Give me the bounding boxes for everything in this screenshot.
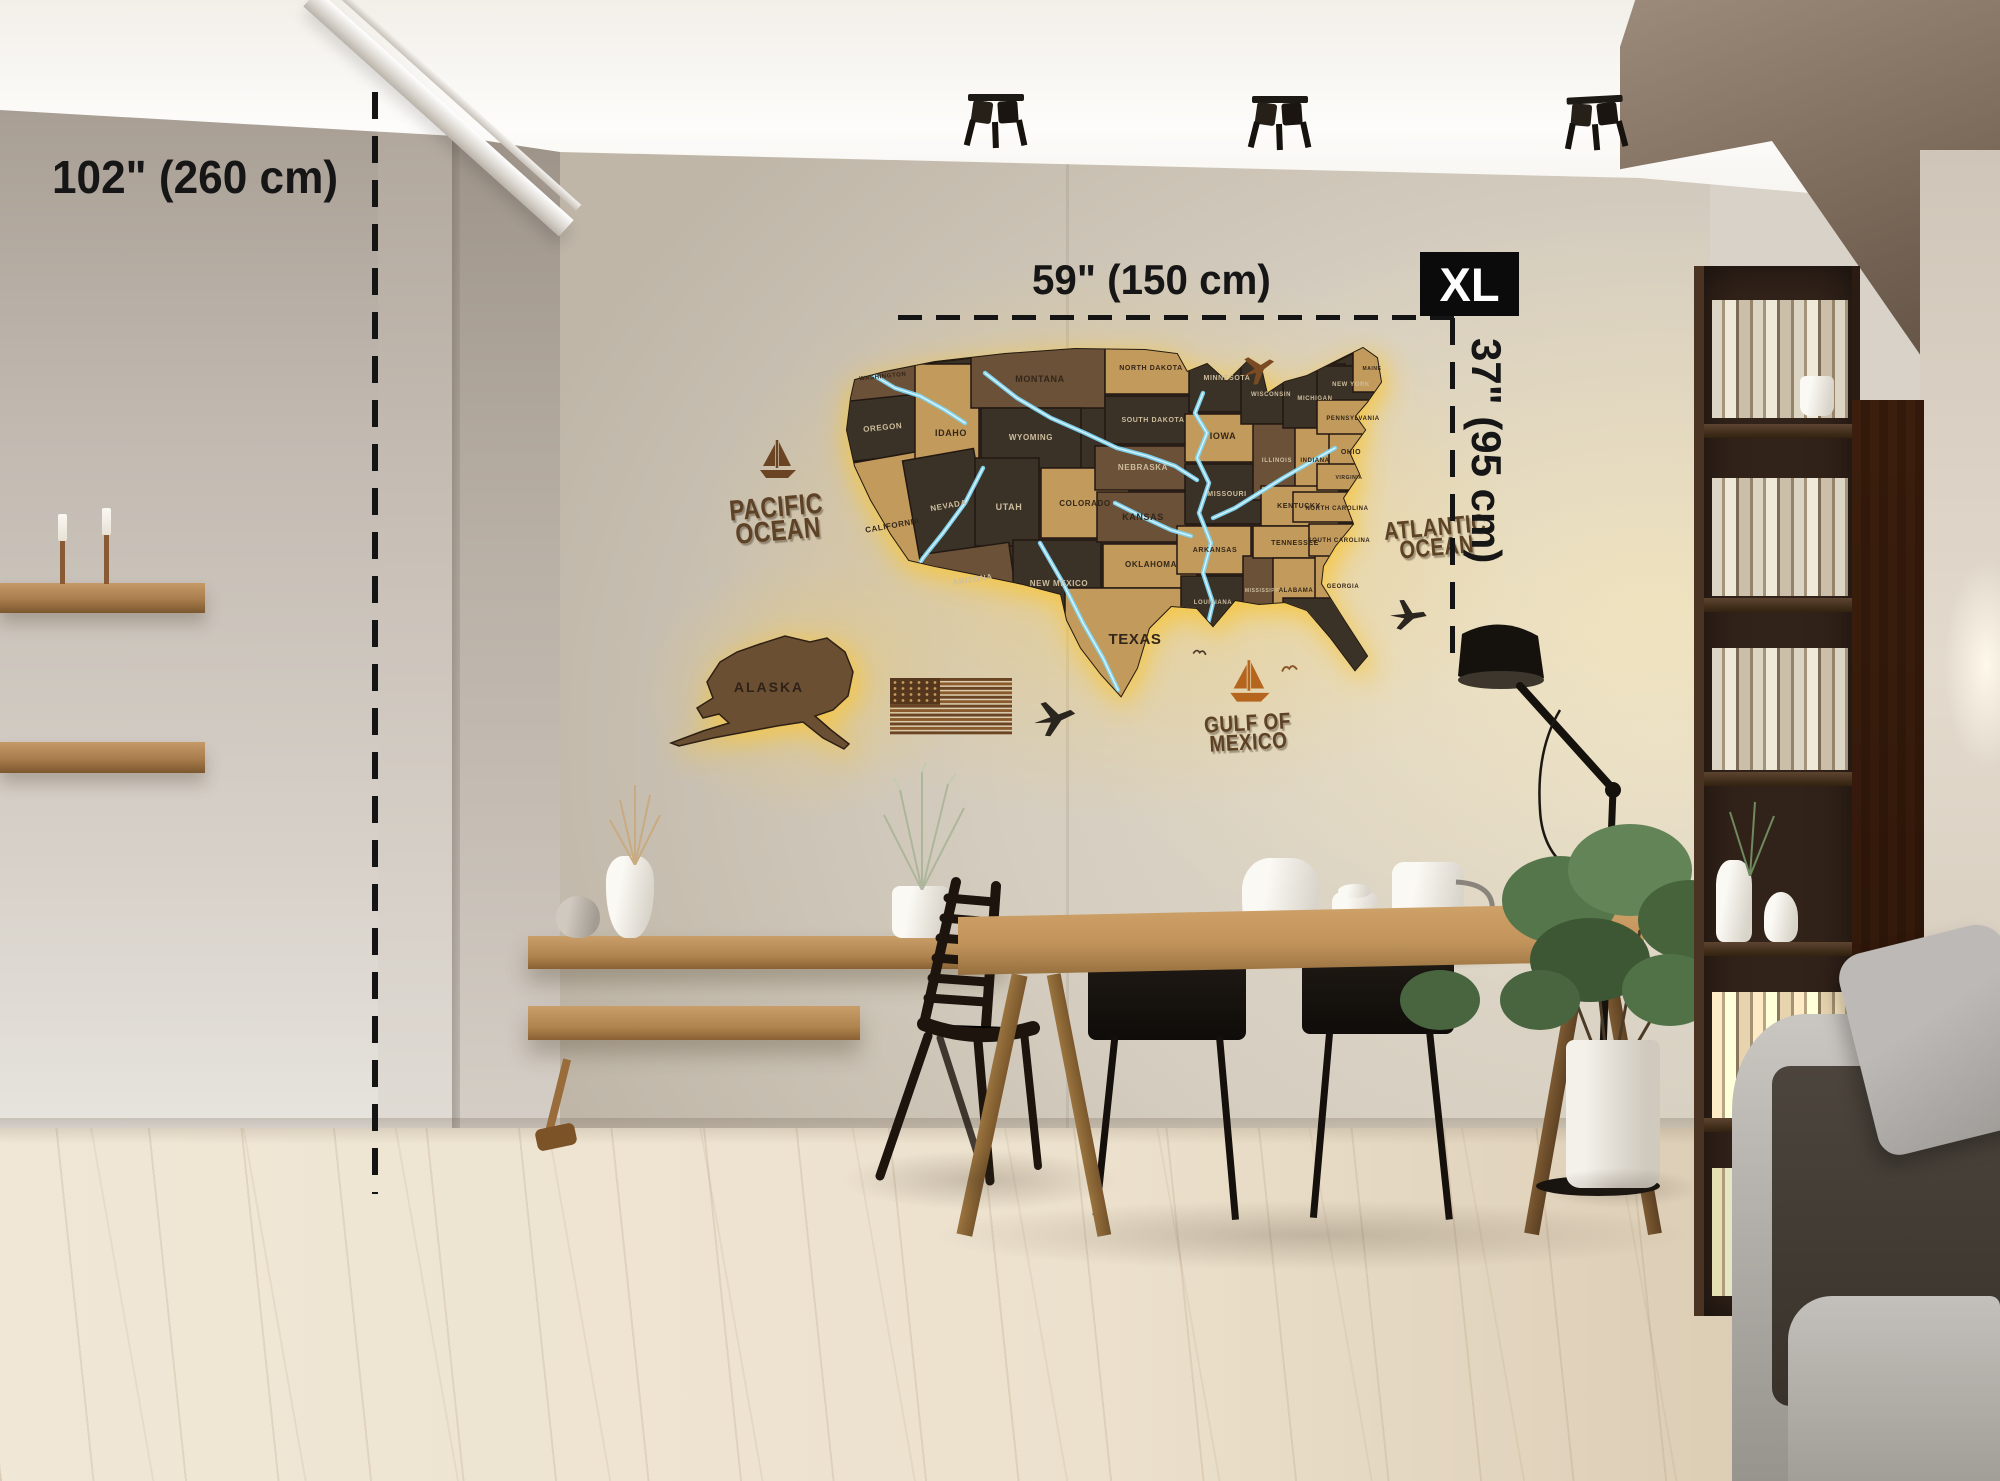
dried-branches xyxy=(590,770,680,865)
state-label: MONTANA xyxy=(1015,374,1065,384)
state-label: WYOMING xyxy=(1009,433,1053,442)
gulf-of-mexico-sign: GULF OF MEXICO xyxy=(1187,712,1309,756)
state-label: NEW YORK xyxy=(1332,382,1370,388)
alaska-label: ALASKA xyxy=(734,679,804,695)
us-flag-wall-art xyxy=(890,678,1012,736)
state-label: WISCONSIN xyxy=(1251,392,1291,398)
map-height-dashed-line xyxy=(1450,318,1455,668)
state-label: VIRGINIA xyxy=(1335,475,1362,481)
state-label: TEXAS xyxy=(1108,631,1161,648)
white-plant-pot xyxy=(1566,1040,1660,1188)
shelf-board xyxy=(1704,598,1852,612)
white-cone-vase xyxy=(606,856,654,938)
state-label: UTAH xyxy=(996,502,1023,512)
pot-floor-shadow xyxy=(1540,1168,1700,1208)
sugar-jar-lid xyxy=(1338,884,1372,898)
state-label: MINNESOTA xyxy=(1204,375,1251,382)
state-label: NORTH CAROLINA xyxy=(1305,506,1368,512)
state-arizona xyxy=(922,542,1021,637)
state-label: IOWA xyxy=(1210,431,1236,441)
spotlight-icon xyxy=(964,94,1028,148)
state-label: NORTH DAKOTA xyxy=(1119,365,1182,372)
wall-height-dashed-line xyxy=(372,92,378,1194)
wall-shelf-upper xyxy=(0,583,205,613)
state-label: NEW MEXICO xyxy=(1030,579,1088,588)
state-label: ILLINOIS xyxy=(1262,458,1292,464)
map-height-dimension: 37" (95 cm) xyxy=(1462,338,1510,563)
state-label: MISSISSIPPI xyxy=(1245,588,1281,594)
left-wall-return xyxy=(378,104,460,1194)
candlestick xyxy=(104,534,109,584)
state-label: INDIANA xyxy=(1300,458,1329,464)
state-label: PENNSYLVANIA xyxy=(1326,416,1379,422)
candle xyxy=(58,514,67,541)
state-label: COLORADO xyxy=(1059,499,1110,508)
state-label: OKLAHOMA xyxy=(1125,560,1177,569)
wall-height-dimension: 102" (260 cm) xyxy=(52,150,338,204)
shelf-board xyxy=(1704,772,1852,786)
state-label: KANSAS xyxy=(1122,512,1164,522)
state-label: ARKANSAS xyxy=(1193,547,1237,554)
size-badge: XL xyxy=(1420,252,1519,316)
state-label: IDAHO xyxy=(935,428,967,438)
ceiling-spotlights xyxy=(940,86,1700,176)
state-label: MICHIGAN xyxy=(1297,396,1332,402)
cup-on-shelf xyxy=(1800,376,1834,416)
state-label: MISSOURI xyxy=(1207,491,1246,498)
room-scene: WASHINGTONOREGONCALIFORNIAIDAHONEVADAMON… xyxy=(0,0,2000,1481)
state-label: OHIO xyxy=(1341,449,1361,456)
state-label: MAINE xyxy=(1362,366,1381,372)
state-label: NEBRASKA xyxy=(1118,463,1168,472)
state-label: SOUTH CAROLINA xyxy=(1308,538,1371,544)
chair-floor-shadow xyxy=(840,1150,1120,1210)
state-label: LOUISIANA xyxy=(1194,600,1232,606)
wall-shelf-lower xyxy=(0,742,205,773)
map-width-dashed-line xyxy=(898,315,1454,320)
shelf-board xyxy=(1704,424,1852,438)
shelf-plant-sprigs xyxy=(1700,792,1800,876)
state-label: SOUTH DAKOTA xyxy=(1121,417,1184,424)
map-width-dimension: 59" (150 cm) xyxy=(1032,256,1271,304)
books-row xyxy=(1712,648,1848,770)
alaska-wall-art: ALASKA xyxy=(665,626,870,756)
candlestick xyxy=(60,540,65,584)
floating-shelf-bottom xyxy=(528,1006,860,1040)
willow-branches xyxy=(860,760,990,890)
shelf-vase-round xyxy=(1764,892,1798,942)
gray-vase xyxy=(556,896,600,938)
books-row xyxy=(1712,478,1848,596)
spotlight-icon xyxy=(1562,95,1628,152)
table-floor-shadow xyxy=(930,1200,1690,1270)
state-label: ALABAMA xyxy=(1279,588,1314,594)
us-map-wall-art: WASHINGTONOREGONCALIFORNIAIDAHONEVADAMON… xyxy=(815,338,1395,718)
left-wall xyxy=(0,96,378,1216)
state-label: GEORGIA xyxy=(1327,584,1360,590)
spotlight-icon xyxy=(1248,96,1312,150)
candle xyxy=(102,508,111,535)
shelf-board xyxy=(1704,942,1852,956)
sofa-seat xyxy=(1788,1296,2000,1481)
gulf-line2: MEXICO xyxy=(1209,728,1288,757)
